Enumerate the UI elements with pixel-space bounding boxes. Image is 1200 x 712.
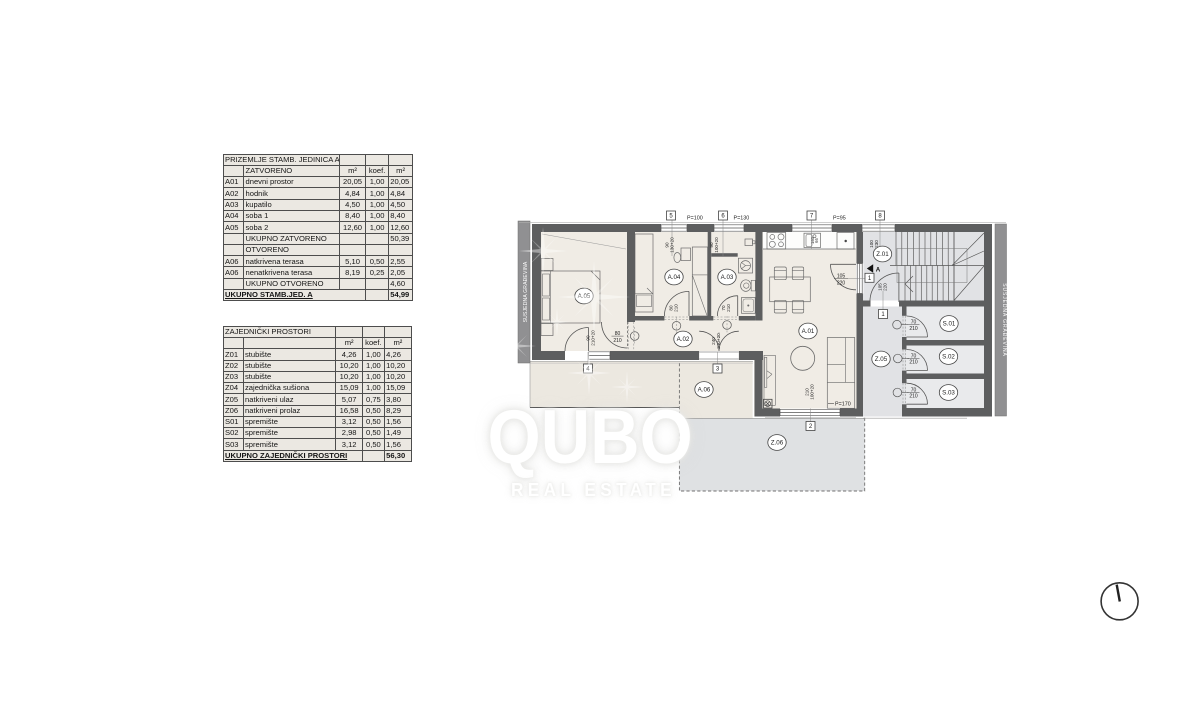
svg-text:A: A	[876, 267, 881, 274]
svg-text:210: 210	[613, 338, 622, 344]
svg-text:P=100: P=100	[687, 216, 703, 222]
svg-text:210: 210	[909, 394, 918, 400]
svg-text:Z.06: Z.06	[771, 440, 784, 447]
svg-text:SUSJEDNA GRAĐEVINA: SUSJEDNA GRAĐEVINA	[1001, 283, 1007, 356]
svg-text:P=130: P=130	[734, 216, 750, 222]
svg-text:210+20: 210+20	[716, 333, 721, 349]
svg-text:220: 220	[883, 283, 888, 291]
svg-text:210+20: 210+20	[591, 330, 596, 346]
svg-text:210: 210	[909, 360, 918, 366]
svg-text:S.01: S.01	[943, 321, 956, 328]
svg-text:A.02: A.02	[677, 336, 690, 343]
svg-text:A.01: A.01	[802, 328, 815, 335]
svg-text:S.02: S.02	[942, 354, 955, 361]
svg-text:220: 220	[837, 280, 846, 286]
svg-text:SUSJEDNA GRAĐEVINA: SUSJEDNA GRAĐEVINA	[523, 261, 529, 322]
svg-text:P=95: P=95	[833, 216, 846, 222]
svg-text:S.03: S.03	[942, 390, 955, 397]
svg-text:210: 210	[674, 304, 679, 312]
svg-text:66: 66	[814, 238, 819, 243]
svg-text:210: 210	[726, 304, 731, 312]
svg-text:A.03: A.03	[721, 274, 734, 281]
svg-text:A.06: A.06	[698, 387, 711, 394]
svg-text:130+20: 130+20	[670, 237, 675, 253]
svg-text:Z.01: Z.01	[876, 251, 889, 258]
svg-text:A.04: A.04	[668, 274, 681, 281]
svg-text:210: 210	[909, 326, 918, 332]
svg-text:100+20: 100+20	[714, 237, 719, 253]
svg-text:Z.05: Z.05	[875, 356, 888, 363]
svg-text:P=170: P=170	[835, 401, 851, 407]
svg-text:100+20: 100+20	[810, 384, 815, 400]
